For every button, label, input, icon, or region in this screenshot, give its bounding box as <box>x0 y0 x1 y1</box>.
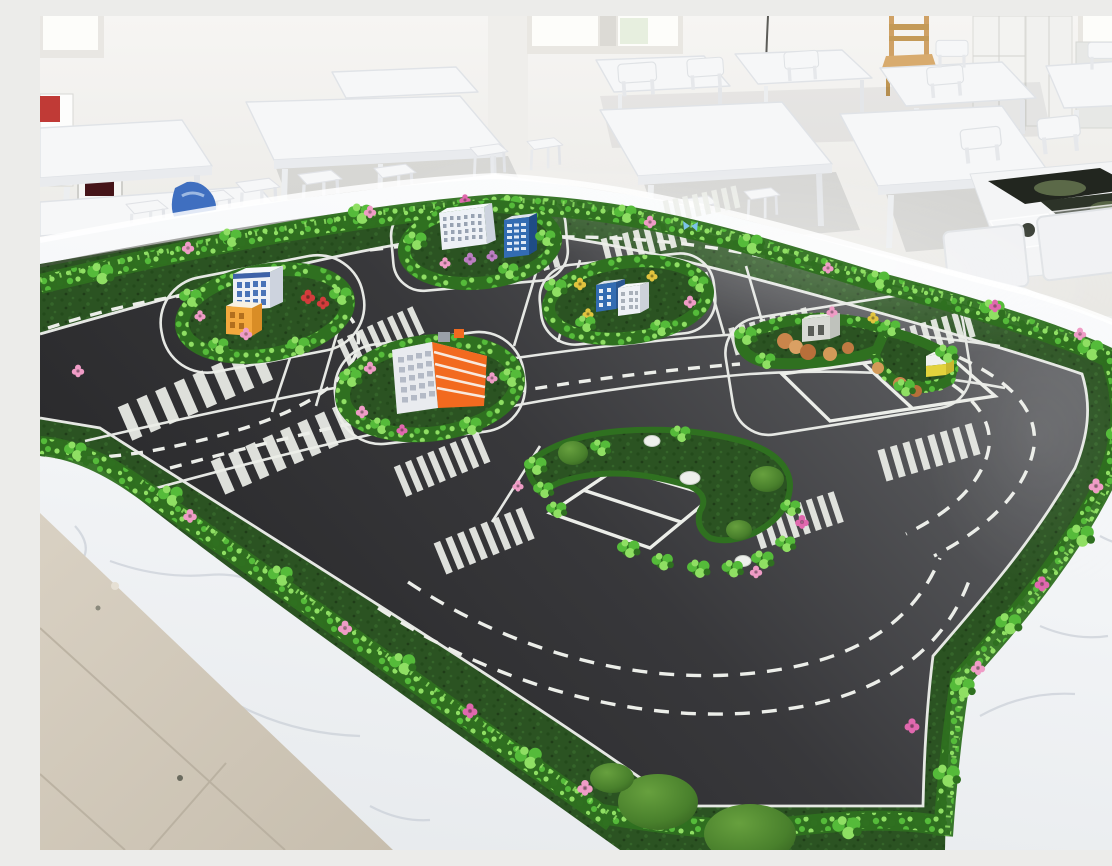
window-left <box>40 16 104 58</box>
roof-vent <box>438 332 450 342</box>
desk <box>332 67 478 98</box>
moss-boulder <box>590 763 634 793</box>
window-center <box>527 16 683 54</box>
moss-ball <box>558 441 588 465</box>
building-blue-tower <box>504 213 537 258</box>
building-white-slab <box>439 203 496 250</box>
classroom-photo <box>40 16 1112 850</box>
floor-mark <box>111 582 119 590</box>
white-rock <box>680 472 700 485</box>
moss-ball <box>750 466 784 492</box>
roof-vent <box>454 329 464 338</box>
moss-ball <box>726 520 752 540</box>
floor-speck <box>96 606 101 611</box>
white-rock <box>644 436 660 447</box>
floor-speck <box>177 775 183 781</box>
